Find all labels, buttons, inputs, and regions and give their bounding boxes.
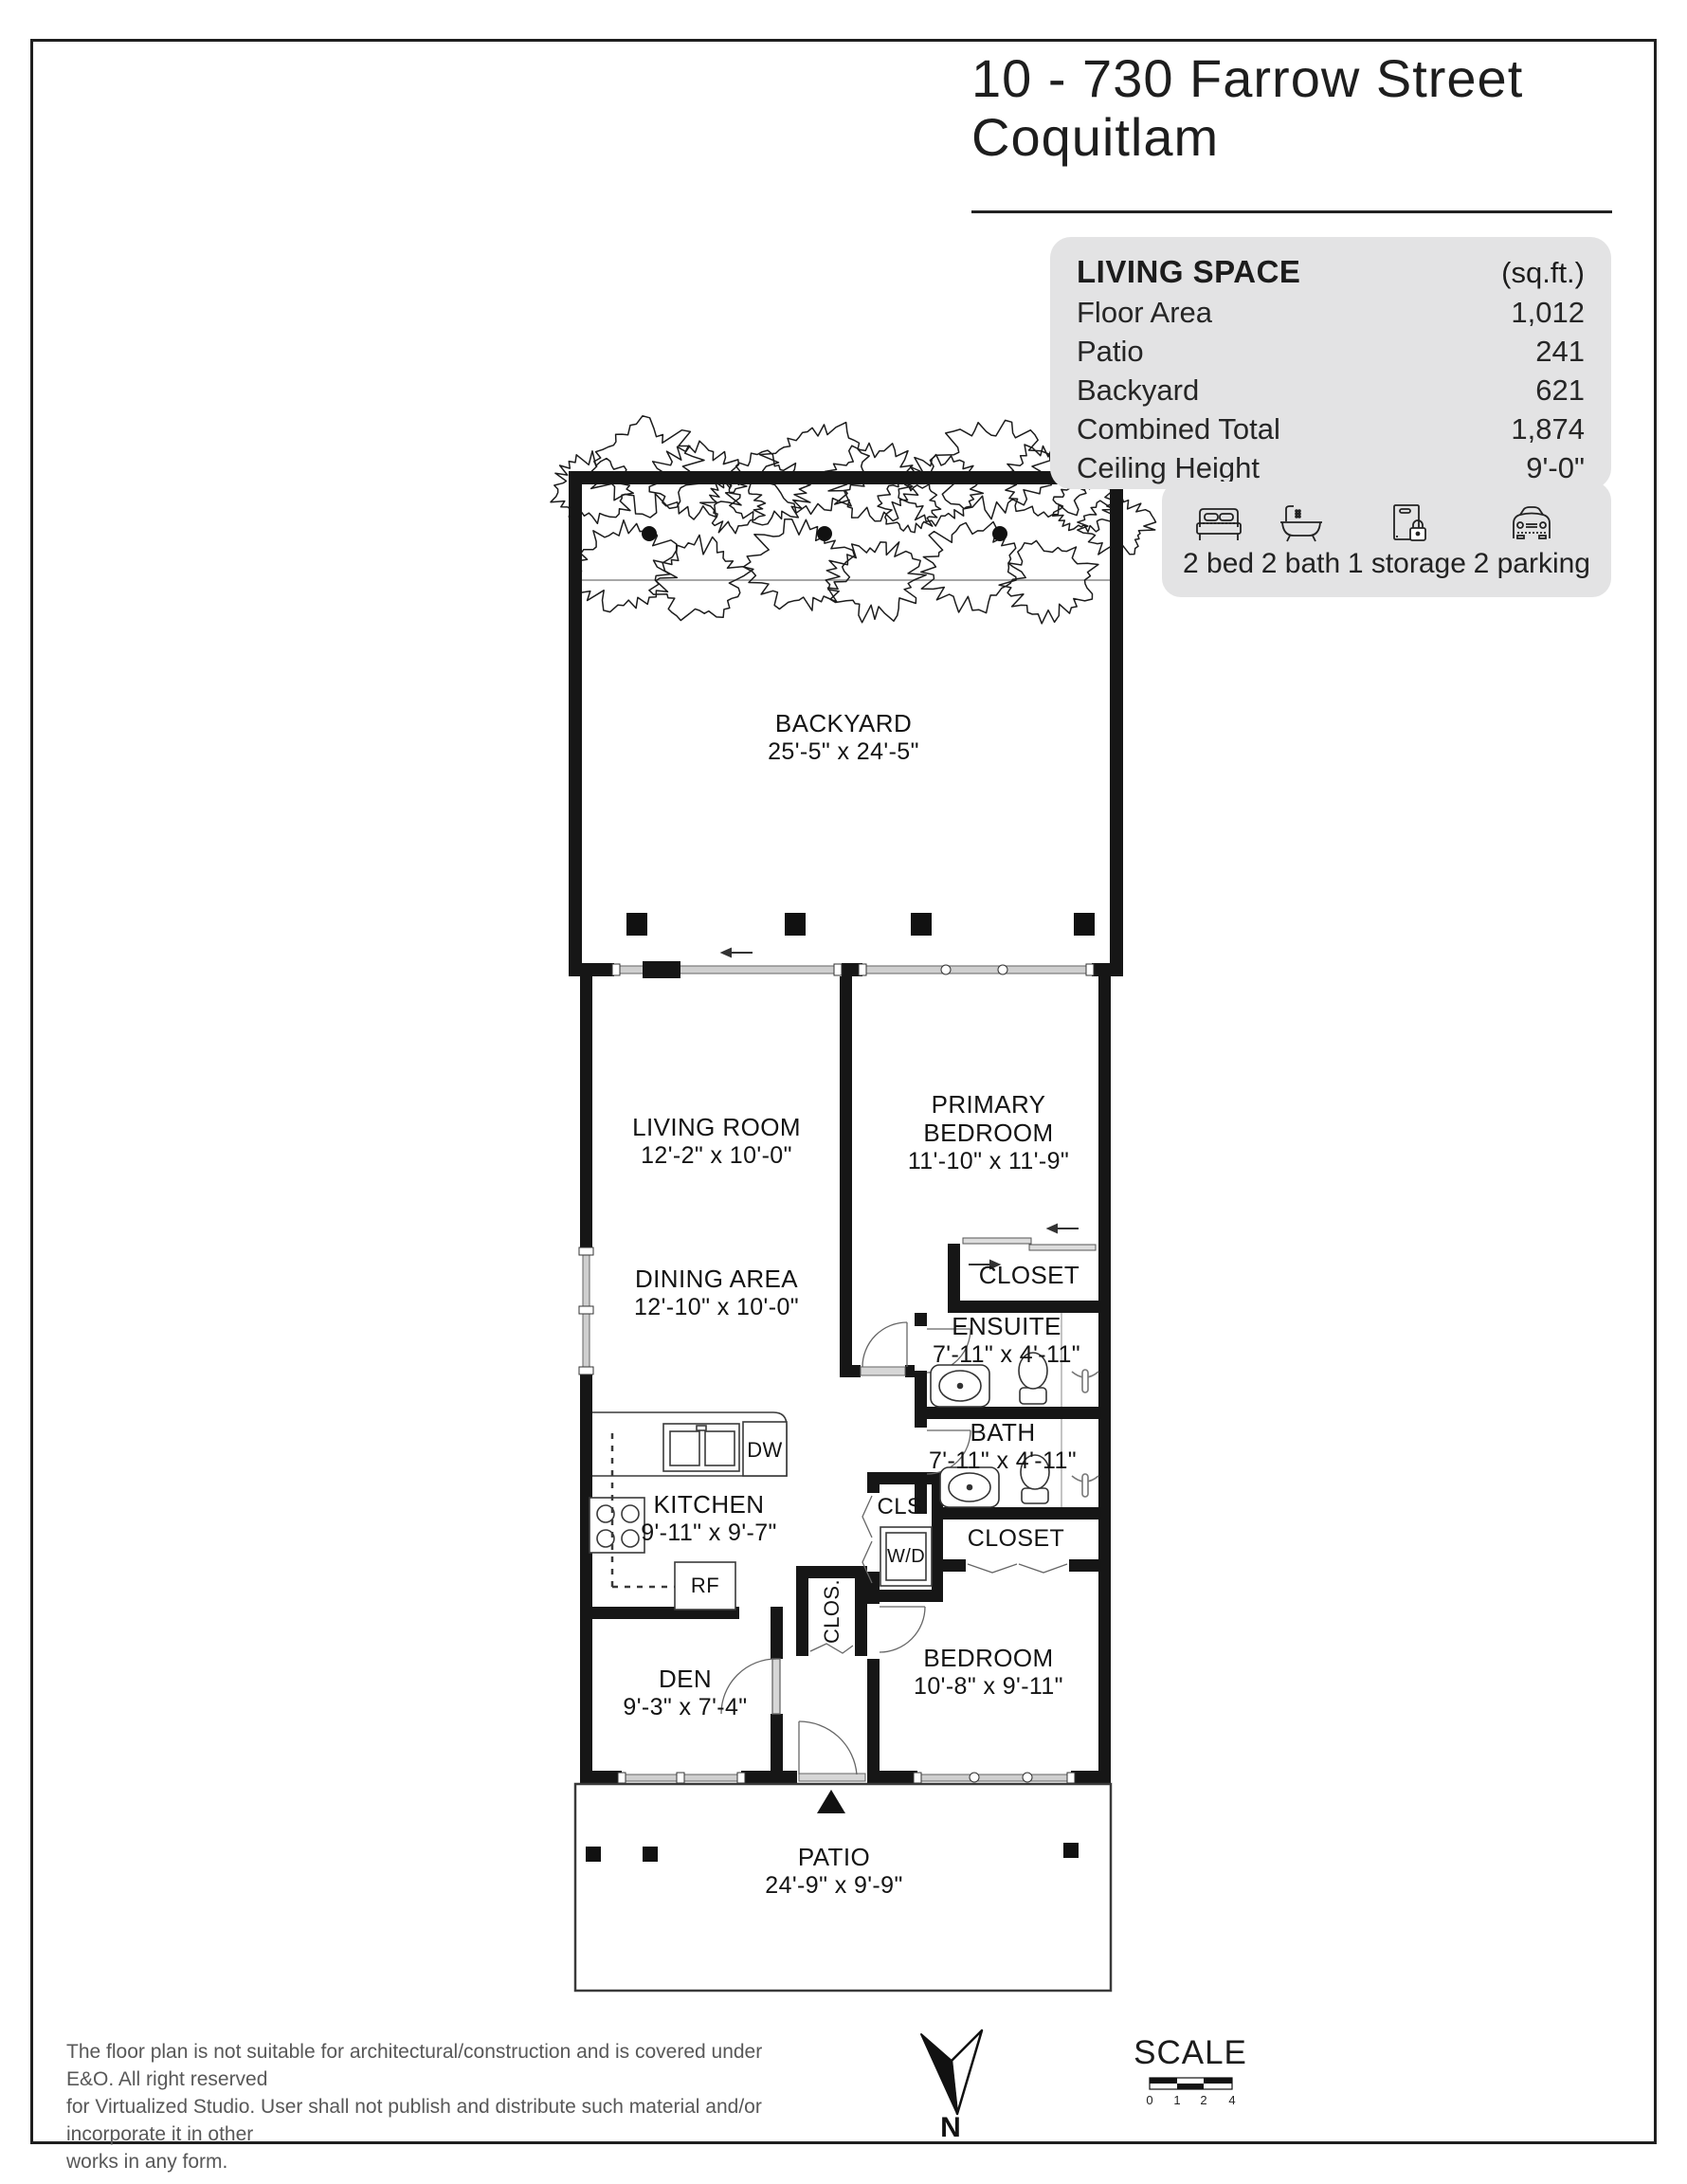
backyard-posts <box>626 913 1095 936</box>
city-line: Coquitlam <box>971 108 1612 167</box>
address-line: 10 - 730 Farrow Street <box>971 49 1612 108</box>
label-backyard: BACKYARD25'-5" x 24'-5" <box>768 709 919 766</box>
storage-icon <box>1379 502 1434 546</box>
bath-icon <box>1273 502 1328 546</box>
page-title: 10 - 730 Farrow Street Coquitlam <box>971 49 1612 167</box>
label-hall-closet: CLOS. <box>818 1579 846 1644</box>
table-row: Backyard 621 <box>1077 371 1585 409</box>
living-space-unit: (sq.ft.) <box>1501 253 1585 293</box>
disclaimer-text: The floor plan is not suitable for archi… <box>66 2038 815 2175</box>
feature-storage: 1 storage <box>1348 502 1466 580</box>
scale-tick: 4 <box>1228 2093 1235 2107</box>
label-laundry-closet: CLS. <box>878 1493 930 1521</box>
label-den: DEN9'-3" x 7'-4" <box>623 1665 747 1721</box>
north-arrow-icon <box>921 2030 982 2114</box>
table-row: Floor Area 1,012 <box>1077 293 1585 332</box>
feature-bath: 2 bath <box>1261 502 1340 580</box>
label-living-room: LIVING ROOM12'-2" x 10'-0" <box>632 1113 801 1170</box>
entry-arrow <box>817 1790 845 1813</box>
parking-icon <box>1504 502 1559 546</box>
scale-label: SCALE <box>1134 2034 1247 2072</box>
label-primary-bedroom: PRIMARY BEDROOM 11'-10" x 11'-9" <box>908 1090 1069 1175</box>
living-space-title: LIVING SPACE <box>1077 252 1300 292</box>
label-primary-closet: CLOSET <box>979 1261 1079 1289</box>
label-bedroom: BEDROOM10'-8" x 9'-11" <box>914 1644 1063 1701</box>
living-space-table: LIVING SPACE (sq.ft.) Floor Area 1,012 P… <box>1050 237 1611 489</box>
scale-tick: 0 <box>1146 2093 1152 2107</box>
scale-tick: 2 <box>1200 2093 1206 2107</box>
feature-parking: 2 parking <box>1474 502 1590 580</box>
bed-icon <box>1191 502 1246 546</box>
label-ensuite: ENSUITE7'-11" x 4'-11" <box>933 1312 1080 1369</box>
scale-tick: 1 <box>1173 2093 1180 2107</box>
table-row: Combined Total 1,874 <box>1077 409 1585 448</box>
title-divider <box>971 210 1612 213</box>
north-label: N <box>940 2112 961 2144</box>
label-bath: BATH7'-11" x 4'-11" <box>929 1418 1077 1475</box>
scale-bar <box>1150 2078 1232 2089</box>
table-row: Patio 241 <box>1077 332 1585 371</box>
label-fridge: RF <box>691 1576 719 1595</box>
label-kitchen: KITCHEN9'-11" x 9'-7" <box>641 1490 777 1547</box>
feature-bed: 2 bed <box>1183 502 1254 580</box>
label-bedroom-closet: CLOSET <box>968 1524 1064 1553</box>
label-dining-area: DINING AREA12'-10" x 10'-0" <box>634 1265 799 1321</box>
label-dishwasher: DW <box>747 1441 782 1460</box>
label-washer-dryer: W/D <box>887 1547 925 1566</box>
floorplan-page: 10 - 730 Farrow Street Coquitlam LIVING … <box>0 0 1687 2184</box>
label-patio: PATIO24'-9" x 9'-9" <box>765 1843 902 1900</box>
features-strip: 2 bed 2 bath <box>1162 482 1611 597</box>
